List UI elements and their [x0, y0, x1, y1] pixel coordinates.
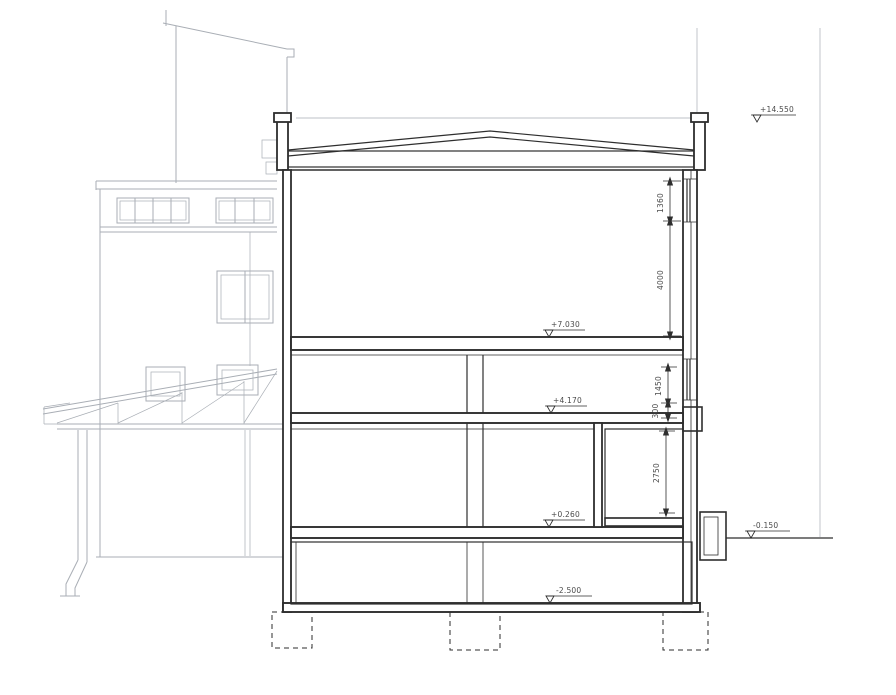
dim-ground-room-label: 2750: [652, 463, 661, 483]
elevation-label-site-ground: -0.150: [753, 521, 778, 530]
floor-slabs: [283, 337, 700, 612]
elevation-label-basement-floor: -2.500: [556, 586, 581, 595]
elevation-marker-second-floor: +4.170: [545, 396, 587, 413]
basement: [291, 542, 692, 604]
elevation-marker-basement-floor: -2.500: [546, 586, 592, 603]
elevation-marker-parapet: +14.550: [751, 105, 796, 122]
elevation-label-ground-floor: +0.260: [551, 510, 580, 519]
dim-hall-height-label: 4000: [656, 270, 665, 290]
interior-partitions-columns: [291, 355, 683, 527]
parapet-left: [274, 113, 291, 170]
section-walls: [283, 170, 702, 612]
downpipe: [60, 430, 87, 596]
elevation-label-parapet: +14.550: [760, 105, 794, 114]
dimension-hall: 1360 4000: [656, 181, 681, 336]
elevation-label-hall-floor: +7.030: [551, 320, 580, 329]
elevation-marker-site-ground: -0.150: [745, 521, 790, 538]
dimension-floor2: 1450 300: [651, 367, 677, 418]
dim-hall-window-label: 1360: [656, 193, 665, 213]
drawing-page: 1360 4000 1450 300 2750 +14.550 +7.030 +…: [0, 0, 896, 695]
dim-floor2-slab-label: 300: [651, 404, 660, 419]
elevation-label-second-floor: +4.170: [553, 396, 582, 405]
dim-floor2-window-label: 1450: [654, 376, 663, 396]
foundation-pads: [272, 612, 708, 650]
dimension-ground-room: 2750: [652, 431, 675, 513]
section-roof: [288, 131, 694, 170]
building-section-drawing: 1360 4000 1450 300 2750 +14.550 +7.030 +…: [0, 0, 896, 695]
adjacent-building-outline: [96, 10, 294, 557]
elevation-marker-hall-floor: +7.030: [543, 320, 585, 337]
parapet-right: [691, 113, 708, 170]
canopy-structure: [43, 365, 283, 429]
site-reference-lines: [296, 28, 820, 537]
elevation-marker-ground-floor: +0.260: [543, 510, 585, 527]
areaway-step: [700, 512, 833, 560]
